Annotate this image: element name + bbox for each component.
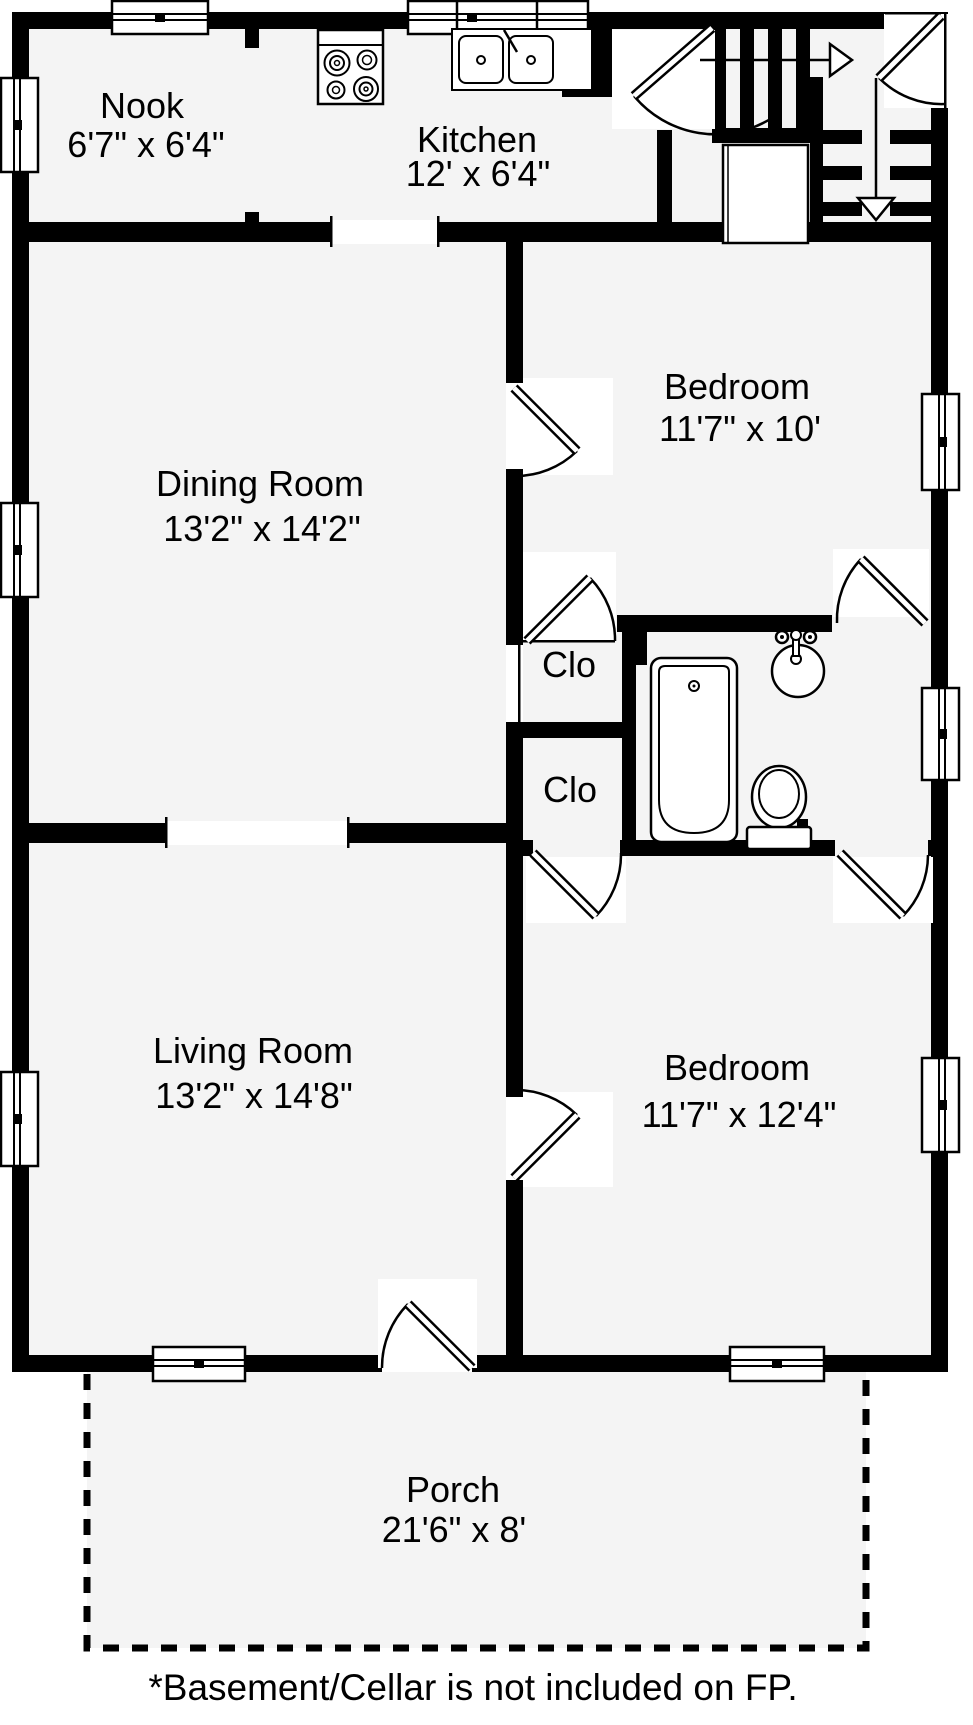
- wall-stair-base: [712, 128, 823, 143]
- toilet: [747, 766, 811, 849]
- opening-jamb: [330, 216, 333, 247]
- window-bedroom2-bottom: [730, 1347, 824, 1381]
- room-dims-living: 13'2" x 14'8": [155, 1075, 352, 1116]
- wall-nook-stub-bottom: [245, 212, 259, 242]
- stair-tread: [890, 202, 931, 216]
- room-label-nook: Nook: [100, 85, 185, 126]
- wall-stair-side: [810, 77, 823, 242]
- window-living-left: [1, 1072, 38, 1166]
- window-bathroom-right: [922, 688, 959, 780]
- room-label-bedroom1: Bedroom: [664, 366, 810, 407]
- stair-tread: [823, 166, 862, 180]
- closet-doorway-line: [523, 640, 615, 643]
- opening-dining-living: [167, 821, 347, 845]
- room-dims-nook: 6'7" x 6'4": [67, 124, 224, 165]
- window-bedroom2-right: [922, 1058, 959, 1152]
- wall-nook-stub-top: [245, 29, 259, 48]
- room-dims-dining: 13'2" x 14'2": [163, 508, 360, 549]
- refrigerator: [723, 145, 808, 243]
- opening-jamb: [165, 817, 168, 848]
- bathroom-sink: [772, 630, 824, 697]
- opening-kitchen-dining: [332, 220, 438, 244]
- window-nook-top: [112, 1, 208, 34]
- closet-thin-wall: [518, 645, 521, 722]
- back-door-threshold: [885, 12, 941, 15]
- room-label-dining: Dining Room: [156, 463, 364, 504]
- room-dims-porch: 21'6" x 8': [382, 1509, 527, 1550]
- wall-stair-hall-left: [657, 130, 672, 242]
- basement-note: *Basement/Cellar is not included on FP.: [148, 1667, 797, 1708]
- stair-tread: [823, 130, 862, 144]
- room-label-bedroom2: Bedroom: [664, 1047, 810, 1088]
- room-dims-kitchen: 12' x 6'4": [406, 153, 551, 194]
- swing-area: [523, 378, 613, 475]
- kitchen-sink: [452, 29, 592, 90]
- stair-tread: [740, 28, 754, 128]
- window-living-bottom: [153, 1347, 245, 1381]
- room-label-closet1: Clo: [542, 644, 596, 685]
- room-dims-bedroom1: 11'7" x 10': [659, 408, 821, 449]
- stair-tread: [823, 202, 862, 216]
- wall-exterior-left: [12, 12, 29, 1372]
- exterior-edge-line: [944, 14, 947, 109]
- wall-bath-top: [617, 615, 832, 632]
- toilet-handle: [797, 819, 808, 827]
- room-label-porch: Porch: [406, 1469, 500, 1510]
- opening-jamb: [437, 216, 440, 247]
- wall-bath-bottom-a: [506, 840, 533, 856]
- wall-closet-divider: [506, 722, 636, 738]
- opening-jamb: [347, 817, 350, 848]
- room-label-closet2: Clo: [543, 769, 597, 810]
- room-dims-bedroom2: 11'7" x 12'4": [642, 1094, 837, 1135]
- bathtub: [651, 658, 737, 842]
- stair-tread: [796, 28, 810, 128]
- floor-plan: Nook 6'7" x 6'4" Kitchen 12' x 6'4" Dini…: [0, 0, 973, 1725]
- wall-closet-east: [622, 632, 636, 853]
- stair-tread: [890, 130, 931, 144]
- window-dining-left: [1, 503, 38, 597]
- window-bedroom1-right: [922, 394, 959, 490]
- toilet-tank: [747, 827, 811, 849]
- window-nook-left: [1, 78, 38, 172]
- stair-tread: [890, 166, 931, 180]
- wall-bath-bottom-c: [928, 840, 948, 856]
- stair-tread: [768, 28, 782, 128]
- room-label-living: Living Room: [153, 1030, 353, 1071]
- stove: [318, 30, 383, 104]
